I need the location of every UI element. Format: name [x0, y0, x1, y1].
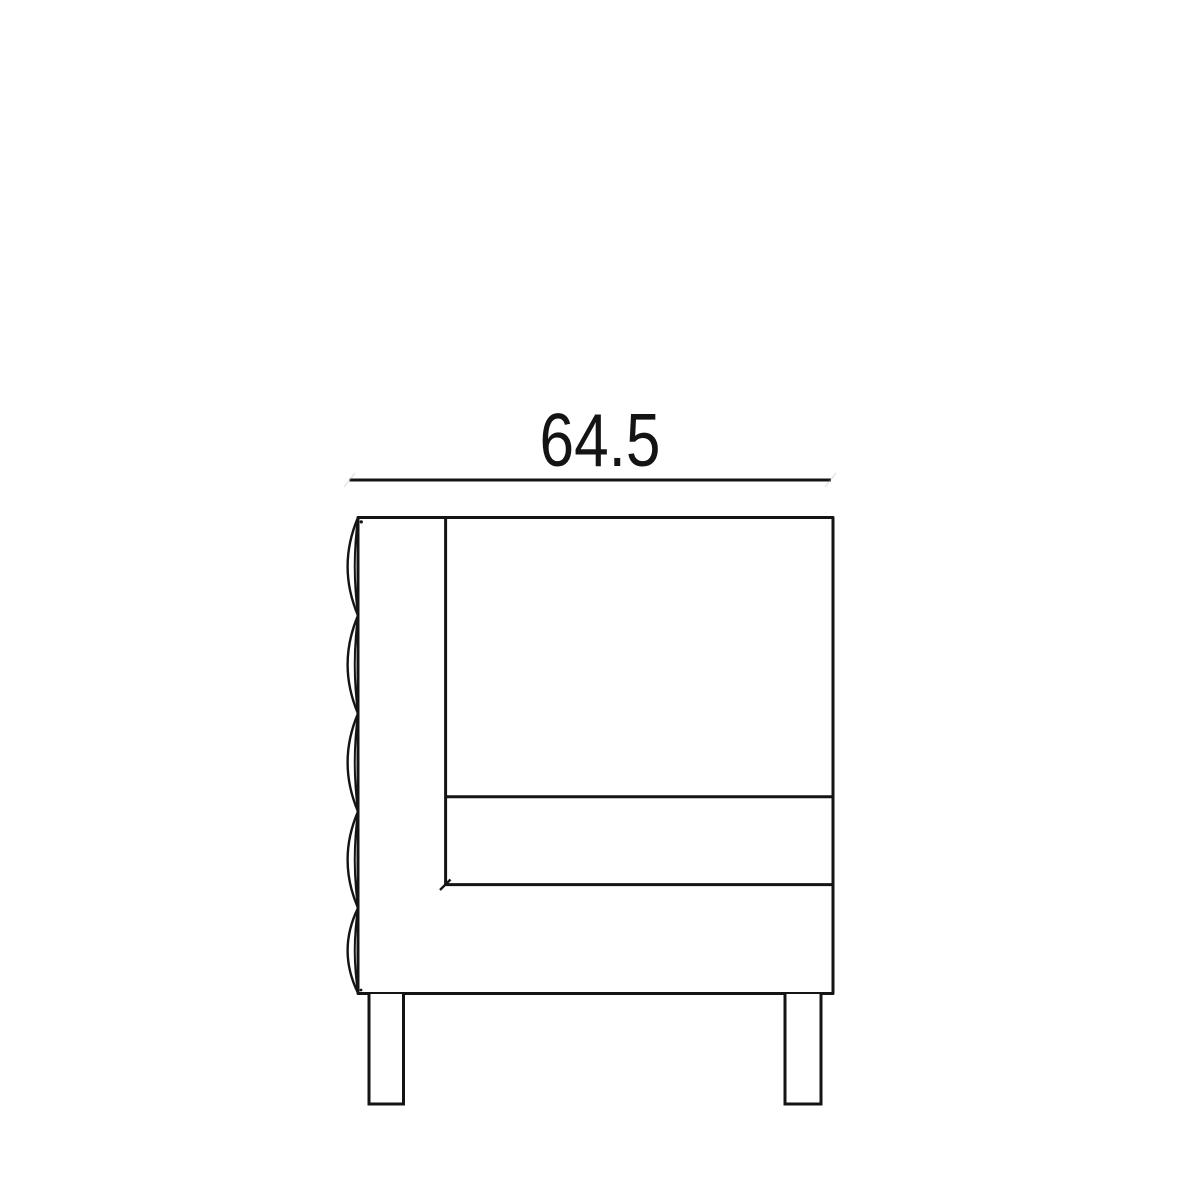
svg-text:64.5: 64.5 [540, 398, 661, 482]
